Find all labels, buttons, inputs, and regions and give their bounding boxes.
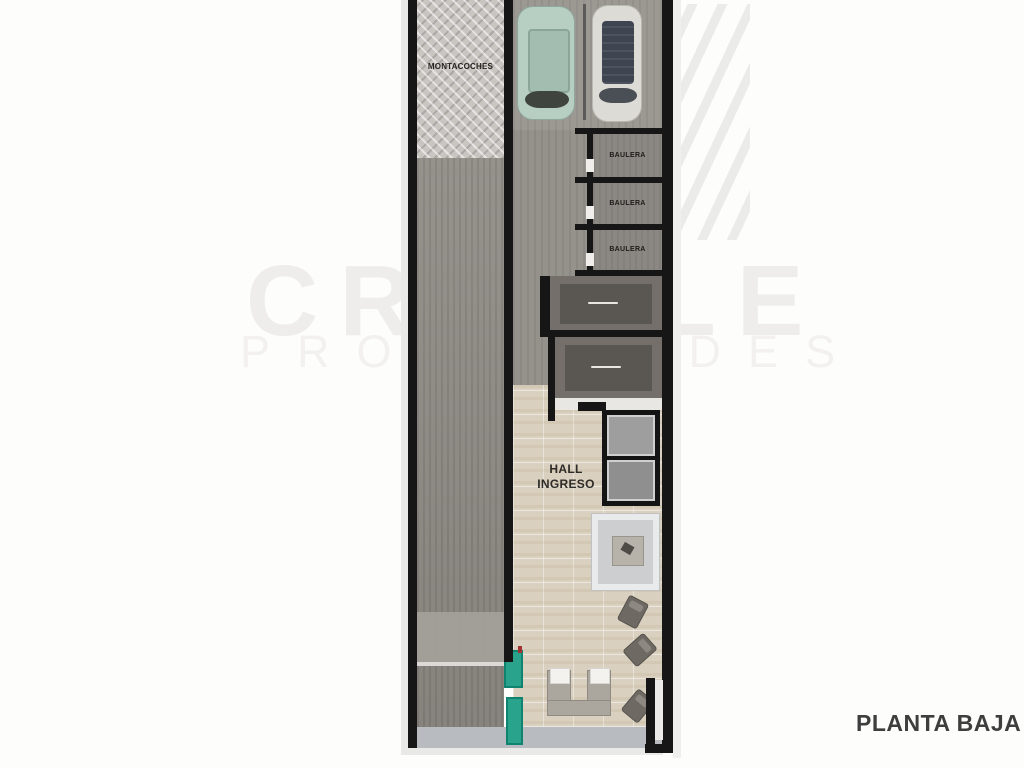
wall-stub [578,402,606,411]
green-car-top-view [517,6,575,120]
baulera-door-gap-2 [586,206,594,219]
wall-middle [504,0,513,662]
sofa-cushion-left [550,668,570,684]
baulera-3-label: BAULERA [593,246,662,253]
door-handle-line [588,302,618,304]
white-car-top-view [592,5,642,122]
plan-caption: PLANTA BAJA [856,710,1021,737]
garage-threshold-block [417,612,504,662]
hall-label-line1: HALL [516,462,616,477]
baulera-door-gap-3 [586,253,594,266]
baulera-unit-3: BAULERA [593,230,662,270]
baulera-door-gap-1 [586,159,594,172]
wall-entry-stub [646,678,655,745]
service-room-lower [555,337,662,398]
wall-room-divider [540,330,662,337]
wall-right [662,0,673,752]
hall-ingreso-label: HALL INGRESO [516,462,616,492]
sofa-cushion-right [590,668,610,684]
elevator-cab-top [607,415,655,456]
parking-divider-line [583,4,586,120]
sidewalk-band [417,727,662,748]
service-room-upper [550,276,662,330]
baulera-unit-1: BAULERA [593,134,662,177]
side-table [612,536,644,566]
montacoches-area [417,0,504,158]
sofa-base [547,700,611,716]
white-car-windshield [599,88,637,103]
entry-door-gap [655,680,663,740]
rug-with-side-table [592,514,659,590]
floor-plan: BAULERA BAULERA BAULERA [398,0,683,762]
service-room-lower-door [565,345,652,391]
plan-outer-edge-right [673,0,681,758]
teal-planter-lower [506,697,523,745]
wall-room-lower-left [548,337,555,421]
wall-room-upper-left [540,276,550,335]
door-handle-line [591,366,621,368]
white-car-panoramic-roof [602,21,634,84]
service-room-upper-door [560,284,652,324]
plan-outer-edge-bottom [401,748,663,755]
montacoches-label: MONTACOCHES [417,62,504,71]
table-decor-item [620,542,634,555]
garage-threshold-line [417,662,504,666]
wall-left [408,0,417,748]
baulera-unit-2: BAULERA [593,183,662,224]
entry-marker [518,646,522,653]
baulera-1-label: BAULERA [593,152,662,159]
plan-outer-edge-left [401,0,408,754]
wall-band-light [555,398,662,410]
baulera-2-label: BAULERA [593,200,662,207]
wall-bottom-right-corner [645,744,673,753]
green-car-windshield [525,91,569,108]
green-car-roof [528,29,570,93]
hall-label-line2: INGRESO [516,477,616,492]
